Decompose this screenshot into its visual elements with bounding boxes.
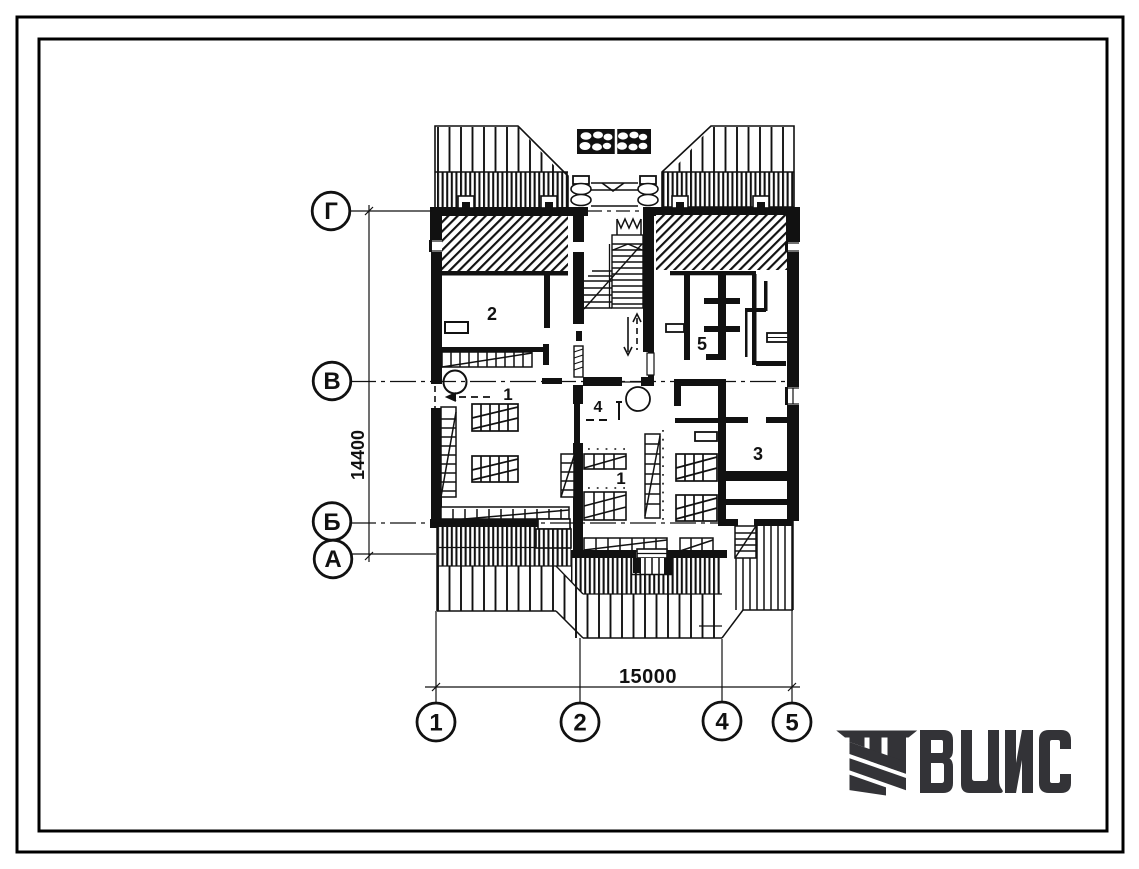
svg-text:15000: 15000 bbox=[619, 666, 677, 688]
svg-text:1: 1 bbox=[616, 469, 625, 488]
svg-text:4: 4 bbox=[594, 399, 603, 416]
svg-text:2: 2 bbox=[573, 710, 586, 737]
svg-text:Г: Г bbox=[324, 198, 338, 225]
svg-text:А: А bbox=[324, 546, 341, 573]
svg-text:5: 5 bbox=[785, 710, 798, 737]
svg-text:В: В bbox=[323, 368, 340, 395]
svg-text:1: 1 bbox=[503, 385, 512, 404]
svg-text:1: 1 bbox=[429, 710, 442, 737]
svg-text:14400: 14400 bbox=[348, 430, 368, 480]
svg-text:2: 2 bbox=[487, 304, 497, 324]
svg-text:4: 4 bbox=[715, 709, 729, 736]
svg-text:3: 3 bbox=[753, 444, 763, 464]
svg-text:5: 5 bbox=[697, 334, 707, 354]
svg-text:Б: Б bbox=[323, 509, 340, 536]
